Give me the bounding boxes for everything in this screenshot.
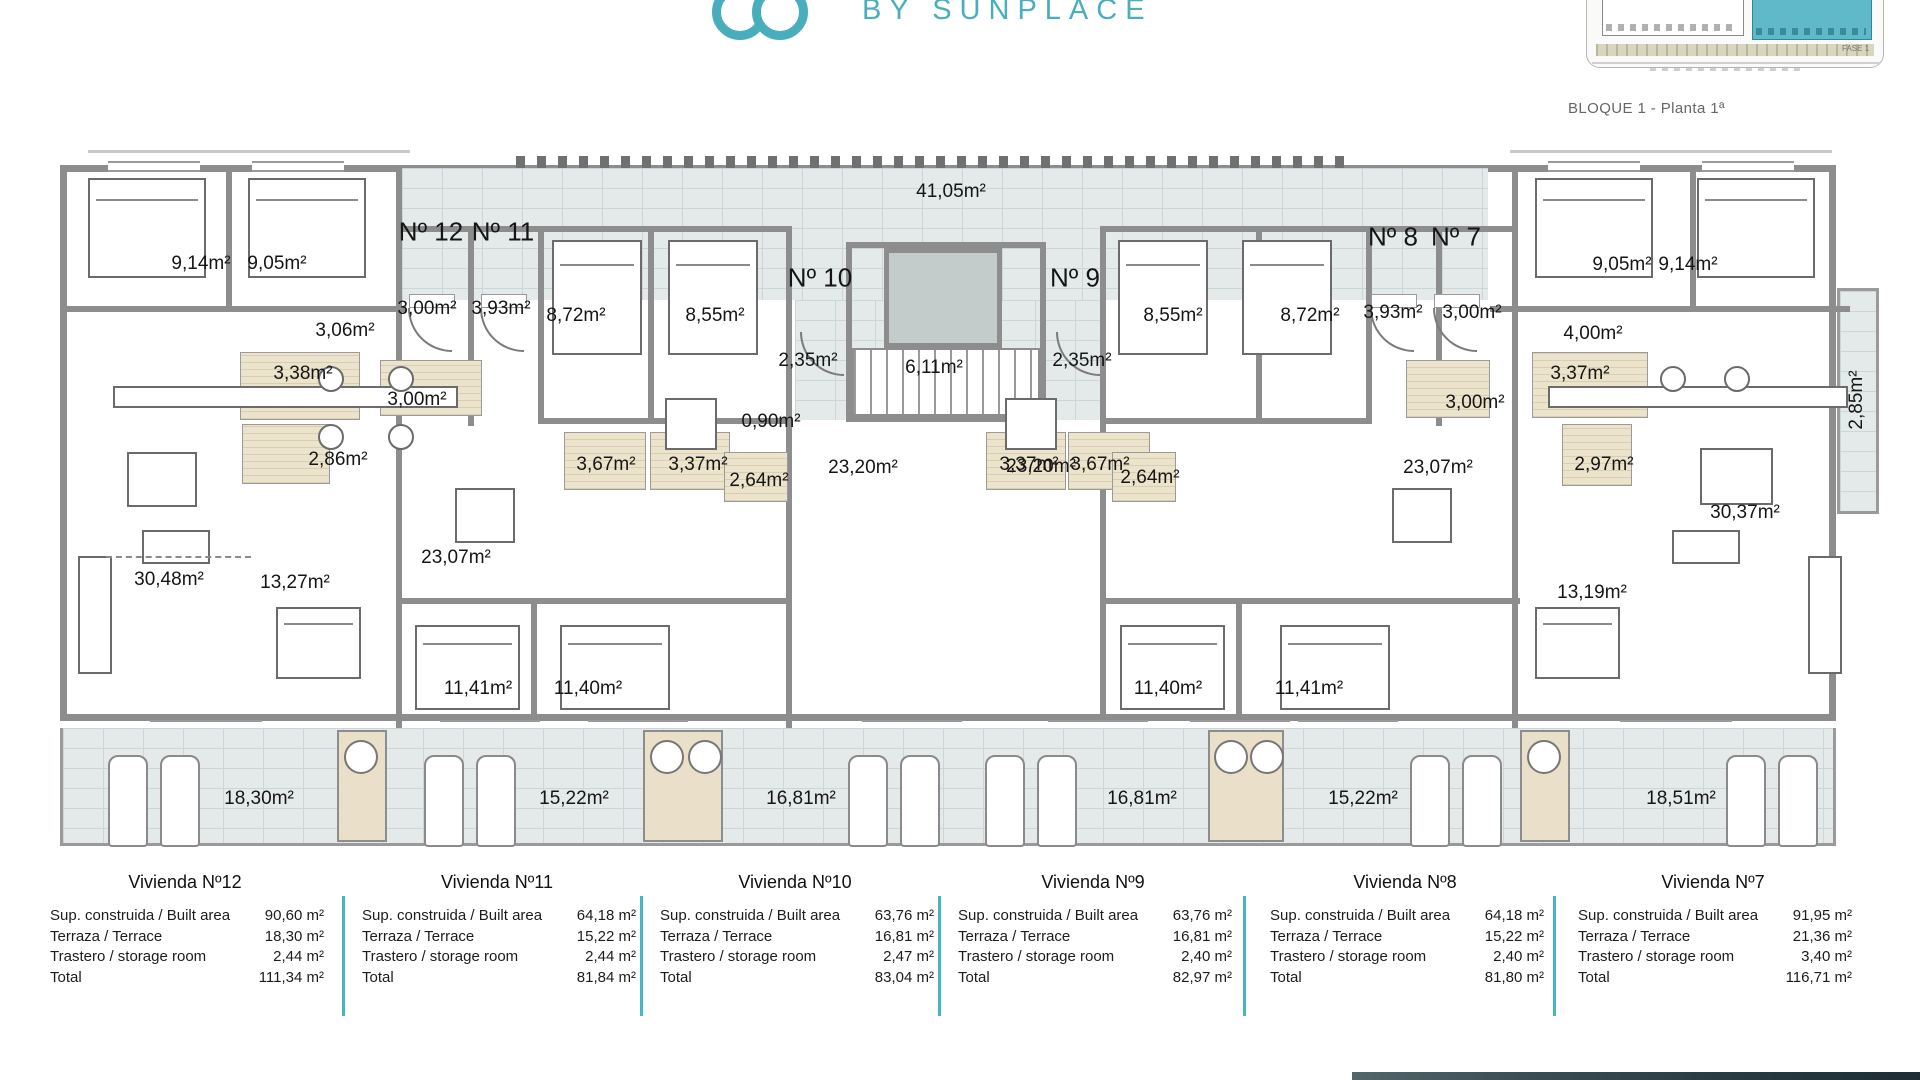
unit-table-row: Sup. construida / Built area63,76 m² (948, 906, 1238, 927)
site-parking-band (1596, 44, 1874, 56)
row-label: Sup. construida / Built area (1270, 906, 1450, 927)
room-area-label: 3,93m² (1363, 302, 1422, 324)
wall (1366, 226, 1372, 424)
bed (1535, 607, 1620, 679)
row-label: Terraza / Terrace (362, 927, 474, 948)
row-value: 83,04 m² (875, 968, 934, 989)
row-label: Sup. construida / Built area (50, 906, 230, 927)
row-value: 63,76 m² (875, 906, 934, 927)
apartment-number-label: Nº 12 (399, 217, 463, 248)
room-area-label: 2,64m² (1120, 467, 1179, 489)
unit-table-row: Total82,97 m² (948, 968, 1238, 989)
unit-table-row: Total83,04 m² (650, 968, 940, 989)
sun-lounger (108, 755, 148, 847)
table-divider (1553, 896, 1556, 1016)
row-label: Trastero / storage room (1270, 947, 1426, 968)
row-value: 2,44 m² (273, 947, 324, 968)
site-building-highlighted-edge (1756, 28, 1866, 35)
bed (276, 607, 361, 679)
unit-table-row: Total81,80 m² (1260, 968, 1550, 989)
row-value: 90,60 m² (265, 906, 324, 927)
plan-caption: BLOQUE 1 - Planta 1ª (1568, 100, 1725, 117)
unit-table-row: Trastero / storage room2,47 m² (650, 947, 940, 968)
row-label: Sup. construida / Built area (660, 906, 840, 927)
terrace-area-label: 18,51m² (1646, 788, 1716, 810)
row-value: 2,40 m² (1493, 947, 1544, 968)
unit-table-row: Sup. construida / Built area90,60 m² (40, 906, 330, 927)
room-area-label: 3,00m² (1445, 392, 1504, 414)
washing-machine (1250, 740, 1284, 774)
wall (1690, 165, 1696, 312)
row-value: 2,44 m² (585, 947, 636, 968)
sun-lounger (900, 755, 940, 847)
unit-table-row: Trastero / storage room2,44 m² (352, 947, 642, 968)
parapet-railing (516, 156, 1344, 168)
row-label: Total (660, 968, 692, 989)
unit-table-row: Terraza / Terrace15,22 m² (352, 927, 642, 948)
terrace-area-label: 16,81m² (766, 788, 836, 810)
room-area-label: 3,93m² (471, 298, 530, 320)
apartment-number-label: Nº 10 (788, 263, 852, 294)
unit-table: Vivienda Nº9Sup. construida / Built area… (948, 872, 1238, 988)
window (1548, 161, 1640, 172)
unit-table-row: Terraza / Terrace15,22 m² (1260, 927, 1550, 948)
room-area-label: 8,72m² (546, 305, 605, 327)
elevator (884, 248, 1002, 348)
dining-table (1005, 398, 1057, 450)
row-label: Trastero / storage room (50, 947, 206, 968)
wall (1490, 306, 1850, 312)
unit-table: Vivienda Nº10Sup. construida / Built are… (650, 872, 940, 988)
room-area-label: 3,00m² (1442, 302, 1501, 324)
row-label: Total (958, 968, 990, 989)
room-area-label: 2,35m² (778, 350, 837, 372)
room-area-label: 2,64m² (729, 470, 788, 492)
dining-table (665, 398, 717, 450)
terrace-area-label: 18,30m² (224, 788, 294, 810)
unit-table-row: Total116,71 m² (1568, 968, 1858, 989)
row-value: 63,76 m² (1173, 906, 1232, 927)
row-label: Total (1270, 968, 1302, 989)
bottom-bar (1352, 1072, 1920, 1080)
row-label: Terraza / Terrace (50, 927, 162, 948)
dining-table (127, 452, 197, 507)
room-area-label: 11,40m² (1134, 678, 1202, 700)
row-label: Total (1578, 968, 1610, 989)
wall (60, 306, 406, 312)
sofa (78, 556, 112, 674)
apartment-number-label: Nº 7 (1431, 222, 1481, 253)
unit-table-row: Terraza / Terrace21,36 m² (1568, 927, 1858, 948)
unit-table-title: Vivienda Nº11 (352, 872, 642, 893)
room-area-label: 13,27m² (260, 572, 330, 594)
table-divider (1243, 896, 1246, 1016)
dining-table (1392, 488, 1452, 543)
room-area-label: 8,72m² (1280, 305, 1339, 327)
row-label: Terraza / Terrace (660, 927, 772, 948)
unit-table-row: Terraza / Terrace18,30 m² (40, 927, 330, 948)
room-area-label: 2,35m² (1052, 350, 1111, 372)
bathroom-area (1532, 352, 1648, 418)
window (108, 161, 200, 172)
unit-table-row: Sup. construida / Built area64,18 m² (1260, 906, 1550, 927)
unit-table-row: Terraza / Terrace16,81 m² (650, 927, 940, 948)
row-value: 15,22 m² (1485, 927, 1544, 948)
room-area-label: 30,48m² (134, 569, 204, 591)
bed (1242, 240, 1332, 355)
sofa (1672, 530, 1740, 564)
row-value: 91,95 m² (1793, 906, 1852, 927)
apartment-number-label: Nº 9 (1050, 263, 1100, 294)
fase-label: FASE 1 (1842, 44, 1869, 53)
row-value: 18,30 m² (265, 927, 324, 948)
site-plan-thumbnail: FASE 1 (1580, 0, 1892, 76)
unit-table-row: Trastero / storage room2,40 m² (948, 947, 1238, 968)
room-area-label: 2,86m² (308, 449, 367, 471)
terrace-area-label: 15,22m² (1328, 788, 1398, 810)
room-area-label: 41,05m² (916, 181, 986, 203)
room-area-label: 2,85m² (1846, 370, 1868, 429)
row-label: Total (50, 968, 82, 989)
room-area-label: 23,07m² (1403, 457, 1473, 479)
row-value: 16,81 m² (875, 927, 934, 948)
unit-table-row: Sup. construida / Built area63,76 m² (650, 906, 940, 927)
room-area-label: 3,37m² (668, 454, 727, 476)
row-label: Trastero / storage room (958, 947, 1114, 968)
table-divider (640, 896, 643, 1016)
room-area-label: 3,00m² (397, 298, 456, 320)
unit-table-title: Vivienda Nº10 (650, 872, 940, 893)
room-area-label: 2,97m² (1574, 454, 1633, 476)
site-building-windows (1606, 24, 1738, 31)
unit-table: Vivienda Nº12Sup. construida / Built are… (40, 872, 330, 988)
wall (538, 226, 544, 424)
wall (1512, 172, 1518, 728)
washing-machine (1214, 740, 1248, 774)
row-label: Sup. construida / Built area (362, 906, 542, 927)
room-area-label: 11,41m² (444, 678, 512, 700)
bed (552, 240, 642, 355)
wall (1100, 598, 1520, 604)
washing-machine (344, 740, 378, 774)
sun-lounger (985, 755, 1025, 847)
unit-table: Vivienda Nº7Sup. construida / Built area… (1568, 872, 1858, 988)
roof-line (1510, 150, 1832, 153)
room-area-label: 3,38m² (273, 363, 332, 385)
washing-machine (688, 740, 722, 774)
stool (1724, 366, 1750, 392)
row-label: Terraza / Terrace (1578, 927, 1690, 948)
bed (668, 240, 758, 355)
row-value: 2,40 m² (1181, 947, 1232, 968)
unit-table-title: Vivienda Nº8 (1260, 872, 1550, 893)
row-value: 16,81 m² (1173, 927, 1232, 948)
table-divider (342, 896, 345, 1016)
room-area-label: 9,14m² (1658, 254, 1717, 276)
row-value: 82,97 m² (1173, 968, 1232, 989)
washing-machine (650, 740, 684, 774)
stool (388, 424, 414, 450)
brand-text: BY SUNPLACE (862, 0, 1153, 27)
washing-machine (1527, 740, 1561, 774)
room-area-label: 4,00m² (1563, 323, 1622, 345)
unit-table-row: Terraza / Terrace16,81 m² (948, 927, 1238, 948)
row-label: Total (362, 968, 394, 989)
unit-table-row: Total81,84 m² (352, 968, 642, 989)
row-label: Trastero / storage room (1578, 947, 1734, 968)
room-area-label: 8,55m² (1143, 305, 1202, 327)
room-area-label: 6,11m² (905, 357, 963, 379)
room-area-label: 3,67m² (576, 454, 635, 476)
row-value: 81,80 m² (1485, 968, 1544, 989)
site-road-line (1592, 62, 1880, 64)
terrace-area-label: 16,81m² (1107, 788, 1177, 810)
terrace-area-label: 15,22m² (539, 788, 609, 810)
table-divider (938, 896, 941, 1016)
sun-lounger (1462, 755, 1502, 847)
window (1702, 161, 1794, 172)
wall (396, 172, 402, 728)
sun-lounger (1410, 755, 1450, 847)
room-area-label: 0,90m² (741, 411, 800, 433)
row-label: Sup. construida / Built area (1578, 906, 1758, 927)
sun-lounger (848, 755, 888, 847)
unit-table-row: Sup. construida / Built area64,18 m² (352, 906, 642, 927)
unit-table-title: Vivienda Nº7 (1568, 872, 1858, 893)
room-area-label: 13,19m² (1557, 582, 1627, 604)
row-value: 111,34 m² (259, 968, 324, 989)
dining-table (1700, 448, 1773, 505)
window (252, 161, 344, 172)
stool (1660, 366, 1686, 392)
row-value: 64,18 m² (1485, 906, 1544, 927)
room-area-label: 8,55m² (685, 305, 744, 327)
unit-table-row: Trastero / storage room3,40 m² (1568, 947, 1858, 968)
apartment-number-label: Nº 8 (1368, 222, 1418, 253)
row-label: Sup. construida / Built area (958, 906, 1138, 927)
roof-line (88, 150, 410, 153)
room-area-label: 9,05m² (1592, 254, 1651, 276)
logo-icon (752, 0, 808, 40)
sun-lounger (476, 755, 516, 847)
row-value: 64,18 m² (577, 906, 636, 927)
row-label: Terraza / Terrace (958, 927, 1070, 948)
unit-table-row: Trastero / storage room2,40 m² (1260, 947, 1550, 968)
room-area-label: 9,14m² (171, 253, 230, 275)
wall (648, 226, 654, 424)
row-value: 21,36 m² (1793, 927, 1852, 948)
sun-lounger (1037, 755, 1077, 847)
wall (1106, 418, 1372, 424)
row-label: Trastero / storage room (660, 947, 816, 968)
stool (318, 424, 344, 450)
room-divider-dashed (106, 556, 251, 560)
unit-table-row: Trastero / storage room2,44 m² (40, 947, 330, 968)
unit-table: Vivienda Nº8Sup. construida / Built area… (1260, 872, 1550, 988)
dining-table (455, 488, 515, 543)
row-label: Terraza / Terrace (1270, 927, 1382, 948)
unit-table-title: Vivienda Nº9 (948, 872, 1238, 893)
room-area-label: 23,07m² (421, 547, 491, 569)
sun-lounger (1778, 755, 1818, 847)
row-value: 3,40 m² (1801, 947, 1852, 968)
room-area-label: 30,37m² (1710, 502, 1780, 524)
row-value: 2,47 m² (883, 947, 934, 968)
unit-table-row: Total111,34 m² (40, 968, 330, 989)
apartment-number-label: Nº 11 (472, 217, 535, 248)
sofa (1808, 556, 1842, 674)
unit-table-row: Sup. construida / Built area91,95 m² (1568, 906, 1858, 927)
row-value: 116,71 m² (1786, 968, 1852, 989)
bed (1118, 240, 1208, 355)
room-area-label: 3,06m² (315, 320, 374, 342)
room-area-label: 3,00m² (387, 389, 446, 411)
room-area-label: 11,40m² (554, 678, 622, 700)
row-value: 81,84 m² (577, 968, 636, 989)
wall (226, 165, 232, 312)
kitchen-counter (1548, 386, 1848, 408)
unit-table: Vivienda Nº11Sup. construida / Built are… (352, 872, 642, 988)
room-area-label: 3,37m² (999, 454, 1058, 476)
unit-table-title: Vivienda Nº12 (40, 872, 330, 893)
row-label: Trastero / storage room (362, 947, 518, 968)
room-area-label: 3,37m² (1550, 363, 1609, 385)
site-street-text (1650, 68, 1800, 71)
wall (398, 598, 792, 604)
sun-lounger (160, 755, 200, 847)
sun-lounger (1726, 755, 1766, 847)
room-area-label: 9,05m² (247, 253, 306, 275)
sun-lounger (424, 755, 464, 847)
room-area-label: 11,41m² (1275, 678, 1343, 700)
wall (531, 598, 537, 728)
wall (1236, 598, 1242, 728)
row-value: 15,22 m² (577, 927, 636, 948)
room-area-label: 23,20m² (828, 457, 898, 479)
